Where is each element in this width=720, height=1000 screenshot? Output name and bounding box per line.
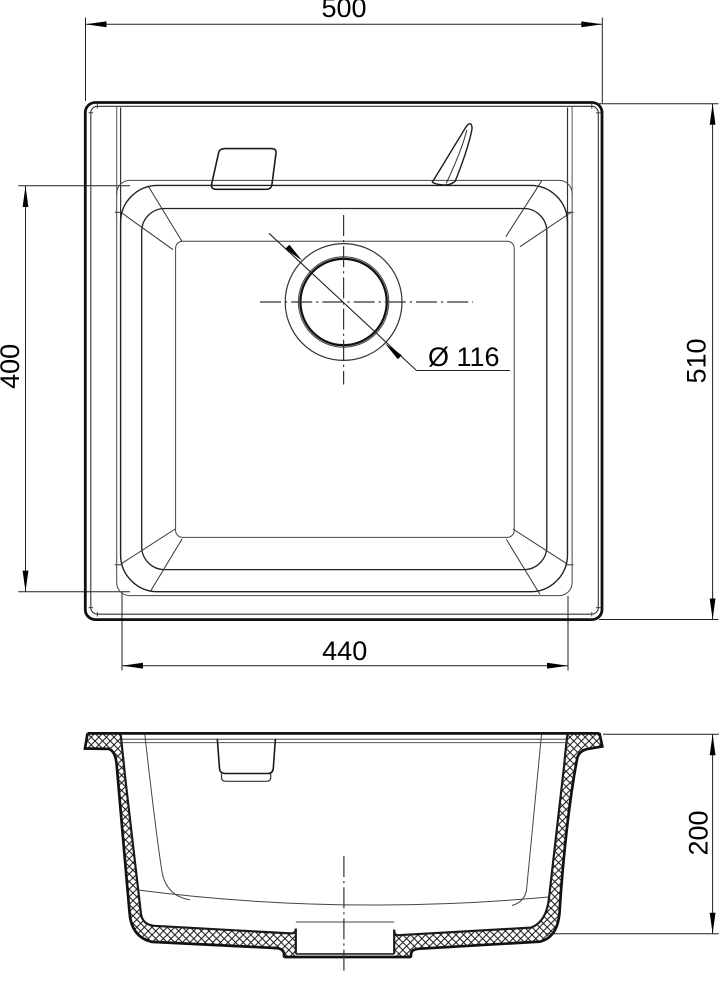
svg-text:510: 510 xyxy=(682,338,712,383)
svg-text:440: 440 xyxy=(322,636,367,666)
svg-text:500: 500 xyxy=(321,0,366,23)
svg-text:200: 200 xyxy=(684,810,714,855)
svg-text:Ø 116: Ø 116 xyxy=(428,342,500,372)
svg-text:400: 400 xyxy=(0,344,25,389)
